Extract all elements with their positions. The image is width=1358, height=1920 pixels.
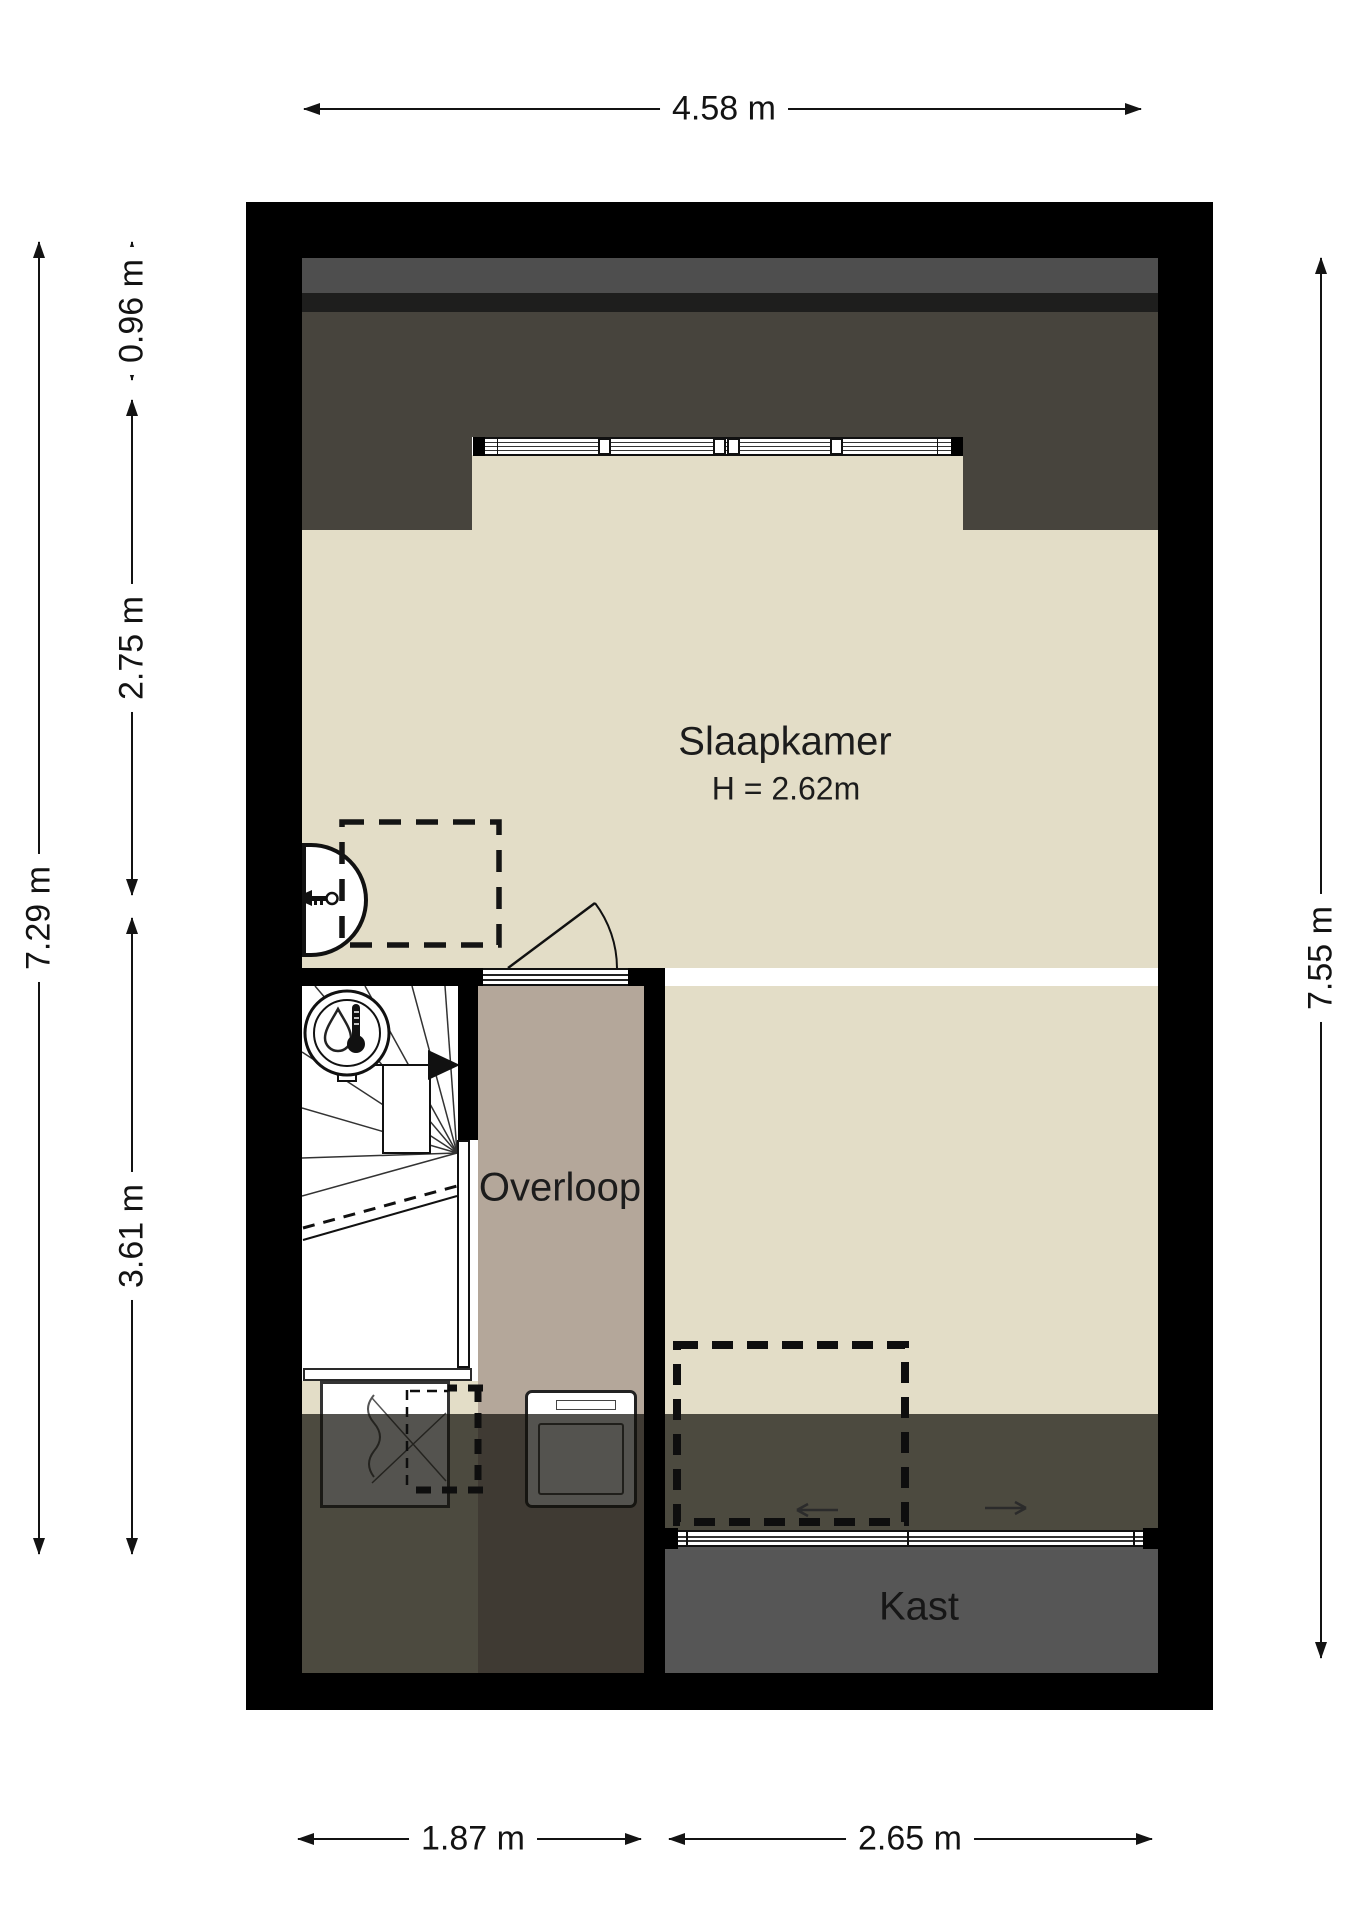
dormer-window bbox=[473, 437, 963, 456]
room-label-slaapkamer: Slaapkamer bbox=[678, 720, 891, 765]
door-swing-icon bbox=[508, 903, 617, 968]
floorplan-canvas: Slaapkamer H = 2.62m Overloop Kast 4.58 … bbox=[0, 0, 1358, 1920]
window-end-cap-left bbox=[473, 437, 485, 456]
slider-end-block-right bbox=[1143, 1528, 1158, 1549]
slider-end-block-left bbox=[665, 1528, 678, 1549]
window-mullion bbox=[830, 438, 843, 455]
dim-label-left-seg1: 0.96 m bbox=[111, 247, 154, 375]
room-label-kast: Kast bbox=[879, 1585, 959, 1630]
wall-bedroom-stairs bbox=[302, 968, 483, 986]
dim-label-left-seg2: 2.75 m bbox=[111, 584, 154, 712]
slide-left-arrow-icon bbox=[797, 1504, 838, 1516]
wall-overloop-right bbox=[644, 968, 665, 1673]
dim-label-bottom-seg1: 1.87 m bbox=[409, 1818, 537, 1861]
dormer-dashed-outline bbox=[342, 822, 499, 945]
wall-bottom bbox=[246, 1673, 1213, 1710]
under-stairs-dashed-lines bbox=[405, 1387, 483, 1493]
window-end-cap-right bbox=[951, 437, 963, 456]
window-mullion bbox=[727, 438, 740, 455]
dim-label-left-seg3: 3.61 m bbox=[111, 1172, 154, 1300]
plan-annotations bbox=[0, 0, 1358, 1920]
dim-label-bottom-seg2: 2.65 m bbox=[846, 1818, 974, 1861]
wall-stairwell bbox=[458, 986, 478, 1140]
dim-label-left-total: 7.29 m bbox=[18, 854, 61, 982]
wall-right bbox=[1158, 202, 1213, 1710]
wall-left bbox=[246, 202, 302, 1710]
room-label-overloop: Overloop bbox=[479, 1166, 641, 1211]
slide-direction-arrows bbox=[797, 1502, 1026, 1516]
kast-sliding-door bbox=[678, 1530, 1143, 1547]
dim-label-top-width: 4.58 m bbox=[660, 88, 788, 131]
kast-dashed-outline bbox=[677, 1345, 905, 1522]
window-mullion bbox=[598, 438, 611, 455]
wall-top bbox=[246, 202, 1213, 258]
dim-label-right-total: 7.55 m bbox=[1300, 894, 1343, 1022]
window-mullion bbox=[713, 438, 726, 455]
slide-right-arrow-icon bbox=[985, 1502, 1026, 1514]
room-height-slaapkamer: H = 2.62m bbox=[712, 771, 861, 808]
door-threshold bbox=[483, 968, 628, 986]
